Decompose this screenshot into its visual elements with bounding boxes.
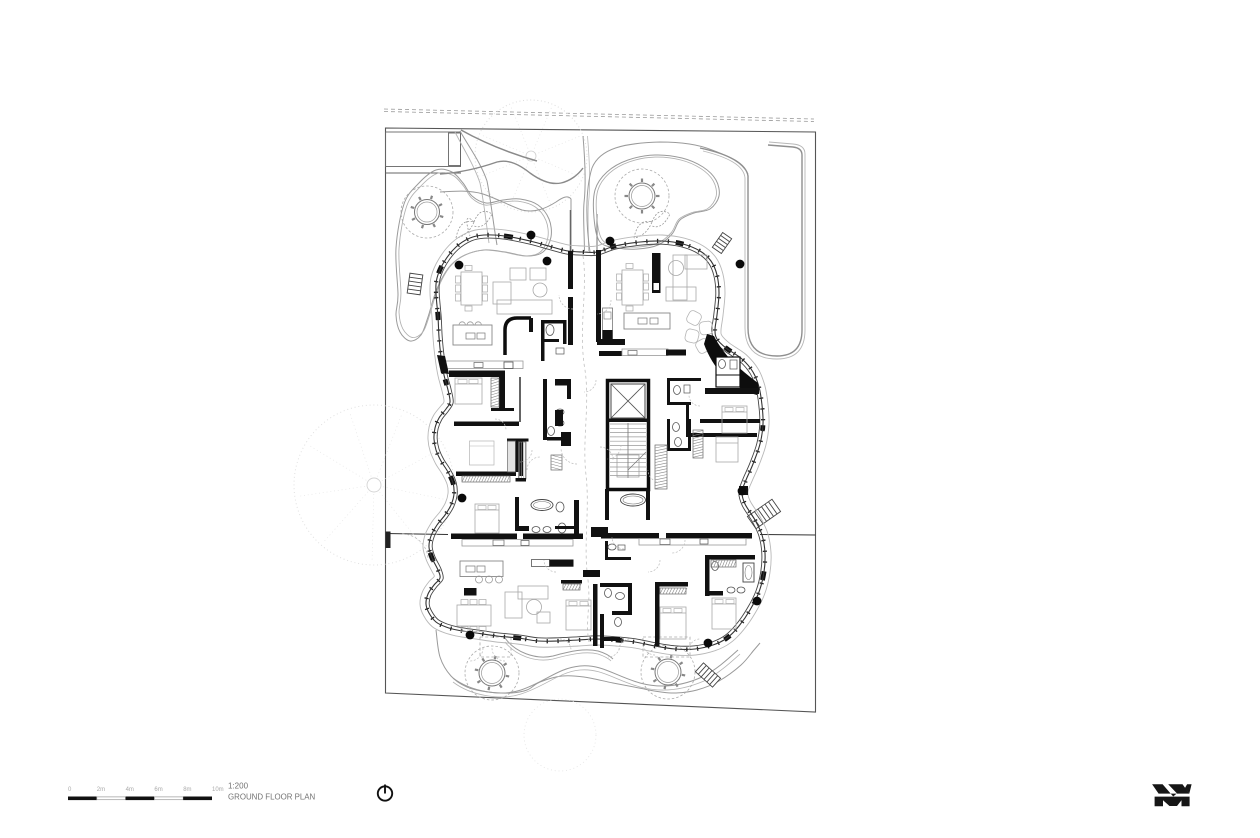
svg-text:0: 0 <box>68 787 72 793</box>
svg-text:8m: 8m <box>183 787 191 793</box>
svg-text:GROUND FLOOR PLAN: GROUND FLOOR PLAN <box>228 793 316 802</box>
svg-text:6m: 6m <box>154 787 162 793</box>
svg-text:4m: 4m <box>126 787 134 793</box>
svg-text:1:200: 1:200 <box>228 782 249 791</box>
svg-text:10m: 10m <box>212 787 224 793</box>
svg-text:2m: 2m <box>97 787 105 793</box>
